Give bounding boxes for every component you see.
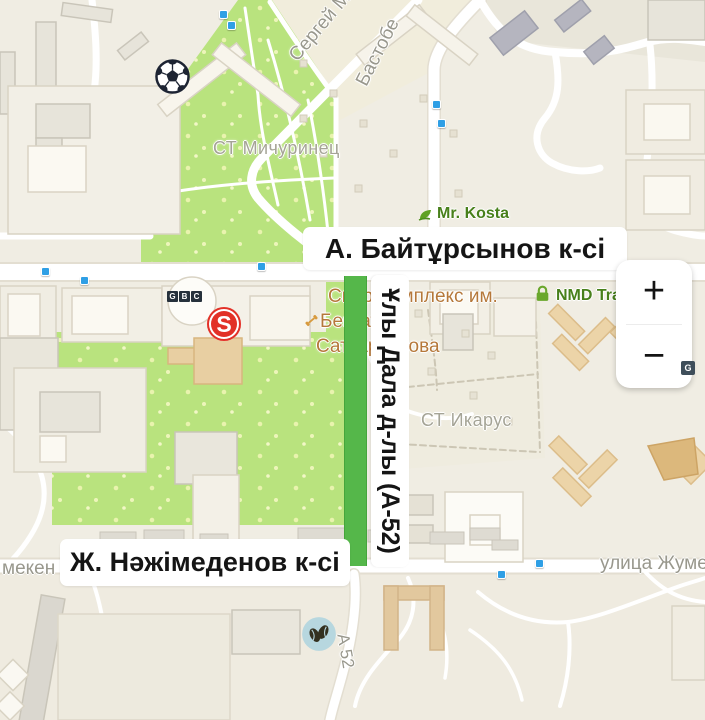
dumbbell-icon[interactable] [304,313,319,333]
gbc-badge[interactable]: G B C [167,291,202,302]
transit-stop-marker [437,119,446,128]
street-plate-uly-dala: Ұлы Дала д-лы (А-52) [371,275,409,567]
gbc-letter: C [191,291,202,302]
coffee-beans-icon[interactable] [301,616,337,657]
street-plate-text: Ұлы Дала д-лы (А-52) [376,288,405,554]
gbc-letter: B [179,291,190,302]
area-label-michurinets: СТ Мичуринец [213,138,340,159]
transit-stop-marker [432,100,441,109]
transit-stop-marker [497,570,506,579]
s-letter: S [216,311,231,338]
poi-label-mr-kosta: Mr. Kosta [437,205,509,223]
street-plate-text: А. Байтұрсынов к-сі [325,233,605,265]
gbc-letter: G [167,291,178,302]
map-view[interactable]: Сергей Мар Бастобе СТ Мичуринец Mr. Kost… [0,0,705,720]
transit-stop-marker [257,262,266,271]
poi-label-nmd: NMD Tra [556,287,621,305]
street-plate-text: Ж. Нәжімеденов к-сі [70,547,340,578]
area-label-ikarus: СТ Икарус [421,410,512,431]
leaf-icon[interactable] [417,206,434,228]
street-plate-baytursynov: А. Байтұрсынов к-сі [303,227,627,270]
transit-stop-marker [41,267,50,276]
street-label-zhumeken: улица Жумекен [600,553,705,575]
football-icon[interactable] [154,58,191,100]
padlock-icon[interactable] [533,284,552,308]
zoom-out-button[interactable]: − [616,325,692,389]
transit-stop-marker [535,559,544,568]
zoom-in-button[interactable]: + [616,260,692,324]
highlighted-route-road[interactable] [344,276,367,566]
g-layer-button[interactable]: G [681,361,695,375]
transit-stop-marker [227,21,236,30]
transit-stop-marker [80,276,89,285]
s-store-icon[interactable]: S [207,307,241,341]
street-plate-nazhimedenov: Ж. Нәжімеденов к-сі [60,539,350,586]
transit-stop-marker [219,10,228,19]
